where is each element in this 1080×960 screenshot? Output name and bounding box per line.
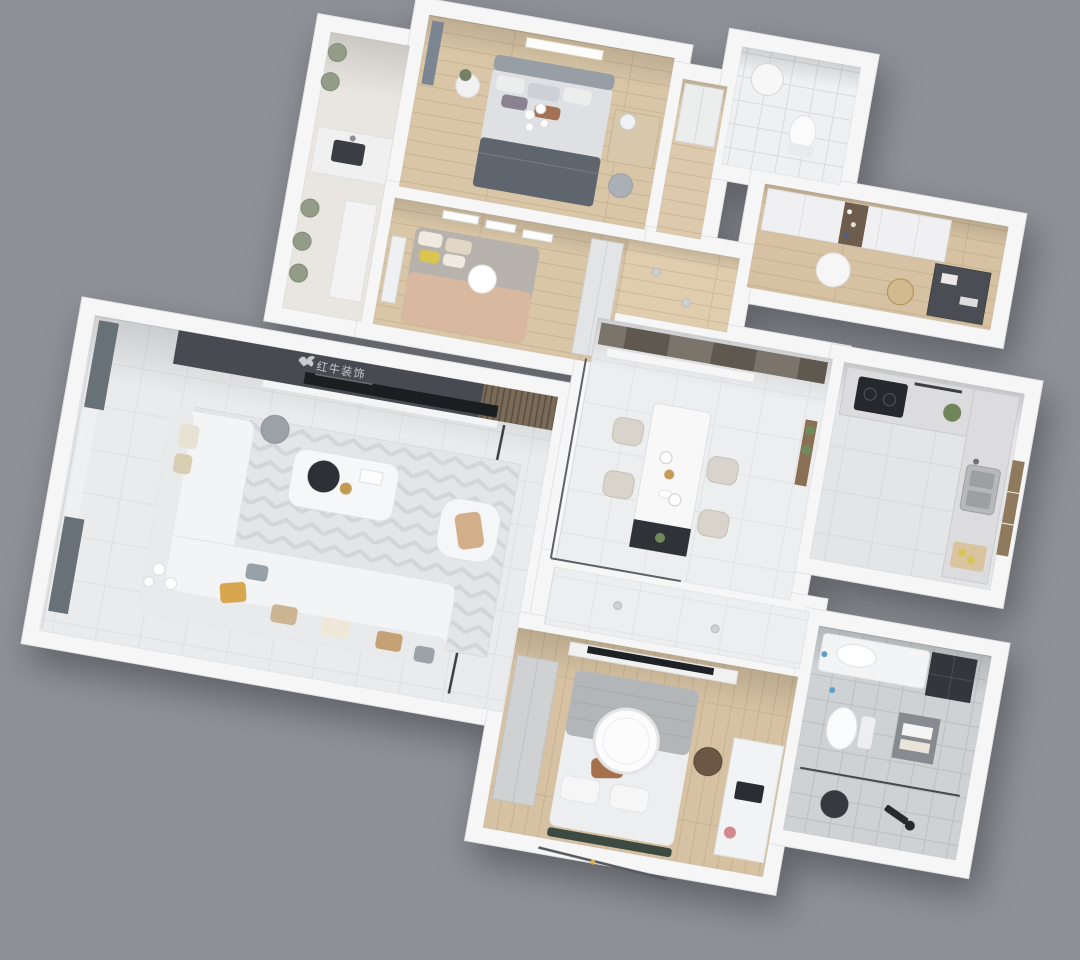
wc-shade — [722, 47, 861, 185]
yellow-pillow — [219, 582, 246, 604]
room-wc-top — [722, 47, 861, 185]
armchair-cushion — [454, 511, 485, 550]
render-canvas: 红牛装饰 — [0, 0, 1080, 960]
room-bathroom — [783, 626, 991, 860]
pillow — [172, 452, 193, 475]
towel-shelf — [891, 712, 940, 765]
dining-chair — [602, 469, 636, 500]
room-dining — [551, 317, 833, 600]
floor-plan-svg: 红牛装饰 — [0, 0, 1080, 960]
pillow — [177, 423, 201, 450]
dining-chair — [611, 416, 645, 447]
desk-dark — [927, 264, 991, 325]
dining-chair — [696, 509, 730, 540]
dining-chair — [706, 455, 740, 486]
